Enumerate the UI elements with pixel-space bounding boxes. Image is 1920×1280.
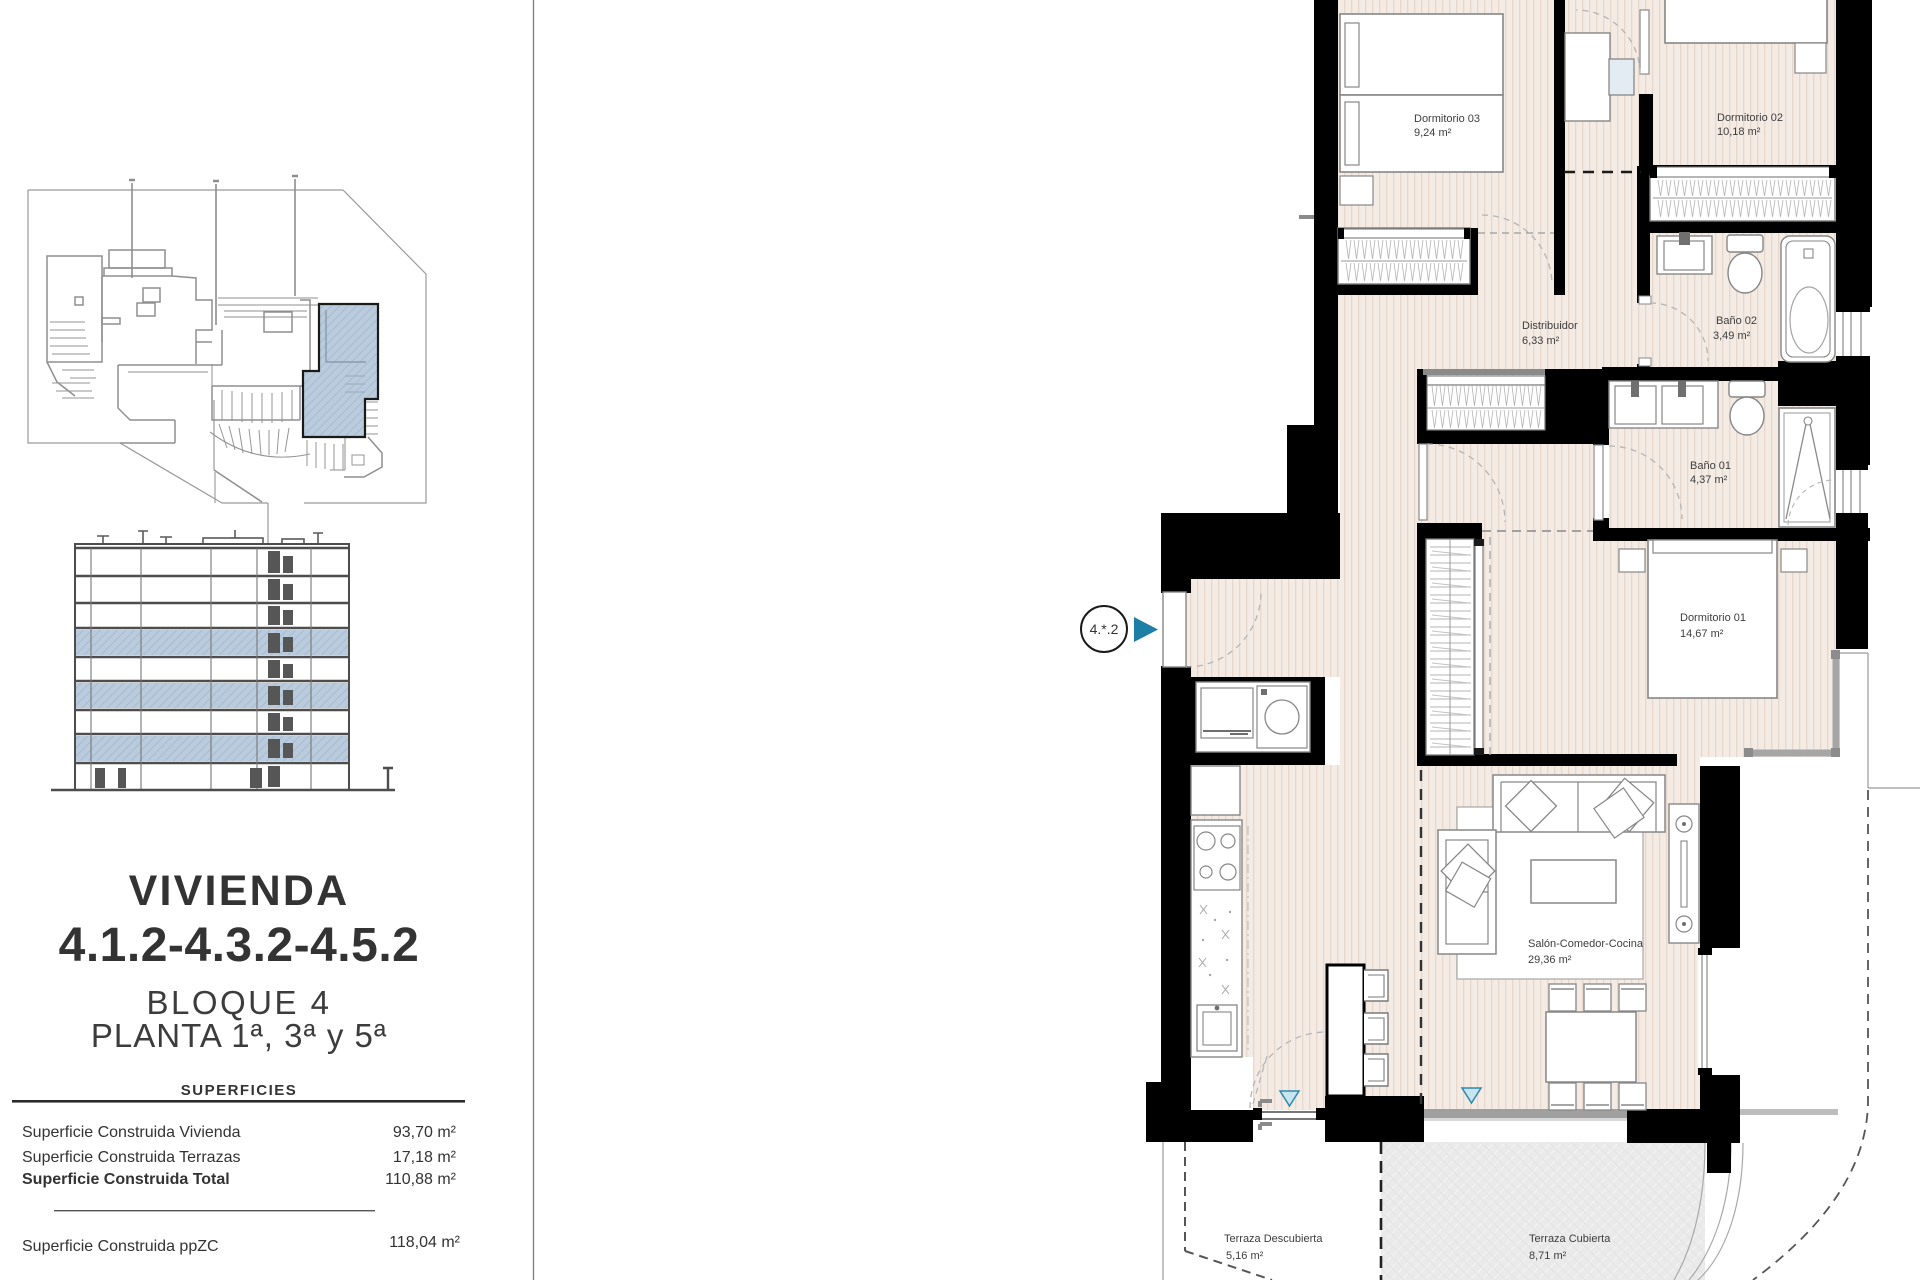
svg-text:5,16 m²: 5,16 m² (1226, 1250, 1264, 1262)
svg-text:Dormitorio 03: Dormitorio 03 (1414, 113, 1480, 125)
svg-text:Dormitorio 01: Dormitorio 01 (1680, 612, 1746, 624)
svg-text:29,36 m²: 29,36 m² (1528, 954, 1572, 966)
svg-text:4,37 m²: 4,37 m² (1690, 474, 1728, 486)
svg-text:9,24 m²: 9,24 m² (1414, 127, 1452, 139)
svg-text:4.1.2-4.3.2-4.5.2: 4.1.2-4.3.2-4.5.2 (59, 919, 420, 972)
svg-text:Terraza Descubierta: Terraza Descubierta (1224, 1233, 1323, 1245)
svg-text:110,88 m²: 110,88 m² (385, 1171, 457, 1188)
svg-text:Terraza Cubierta: Terraza Cubierta (1529, 1233, 1611, 1245)
svg-text:Distribuidor: Distribuidor (1522, 320, 1578, 332)
svg-text:118,04 m²: 118,04 m² (389, 1234, 461, 1251)
svg-text:VIVIENDA: VIVIENDA (129, 867, 350, 915)
svg-text:3,49 m²: 3,49 m² (1713, 330, 1751, 342)
svg-text:Baño 01: Baño 01 (1690, 460, 1731, 472)
svg-text:Superficie Construida Terrazas: Superficie Construida Terrazas (22, 1149, 240, 1166)
svg-text:PLANTA 1ª, 3ª y 5ª: PLANTA 1ª, 3ª y 5ª (91, 1017, 387, 1054)
svg-text:SUPERFICIES: SUPERFICIES (181, 1082, 298, 1099)
svg-text:14,67 m²: 14,67 m² (1680, 628, 1724, 640)
svg-text:Superficie Construida Vivienda: Superficie Construida Vivienda (22, 1124, 241, 1141)
svg-text:93,70 m²: 93,70 m² (393, 1124, 457, 1141)
svg-text:4.*.2: 4.*.2 (1090, 621, 1119, 637)
svg-text:17,18 m²: 17,18 m² (393, 1149, 457, 1166)
svg-text:Dormitorio 02: Dormitorio 02 (1717, 112, 1783, 124)
svg-text:Baño 02: Baño 02 (1716, 315, 1757, 327)
svg-text:Superficie Construida ppZC: Superficie Construida ppZC (22, 1238, 219, 1255)
svg-text:8,71 m²: 8,71 m² (1529, 1250, 1567, 1262)
svg-text:BLOQUE 4: BLOQUE 4 (146, 984, 331, 1021)
svg-text:Salón-Comedor-Cocina: Salón-Comedor-Cocina (1528, 938, 1644, 950)
svg-text:10,18 m²: 10,18 m² (1717, 126, 1761, 138)
svg-text:Superficie Construida Total: Superficie Construida Total (22, 1171, 230, 1188)
svg-text:6,33 m²: 6,33 m² (1522, 335, 1560, 347)
